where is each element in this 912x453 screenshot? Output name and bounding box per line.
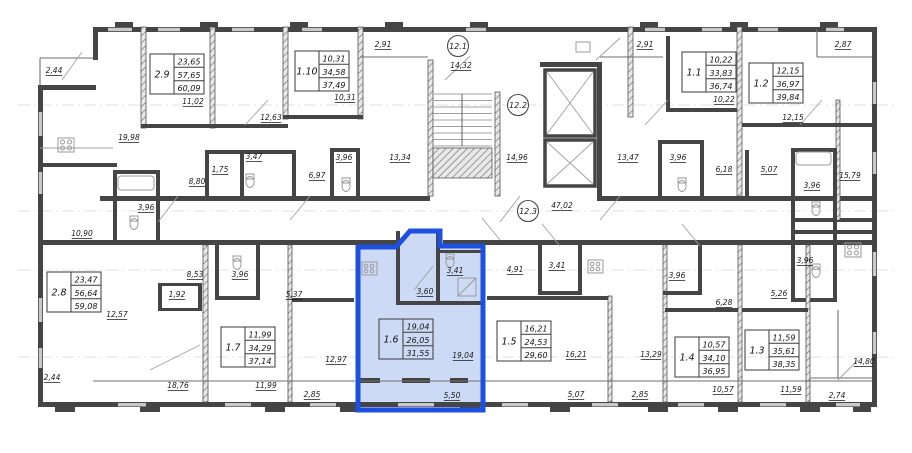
stove-icon [845, 243, 861, 257]
unit-area-1: 11,99 [249, 331, 272, 340]
unit-2.9[interactable]: 2.923,6557,6560,09 [150, 54, 204, 94]
unit-1.2[interactable]: 1.212,1536,9739,84 [749, 63, 803, 103]
unit-area-3: 36,74 [710, 82, 733, 91]
toilet-icon [233, 256, 241, 270]
floor-plan-drawing: 2,4419,9811,0212,6310,312,9114,322,9110,… [0, 0, 912, 453]
unit-area-3: 31,55 [407, 349, 430, 358]
core-marker-12.3: 12.3 [518, 201, 539, 222]
unit-number: 1.7 [225, 343, 240, 354]
unit-number: 1.5 [501, 337, 516, 348]
dimension-label: 2,87 [835, 40, 852, 49]
dimension-label: 6,28 [716, 298, 733, 307]
unit-area-3: 38,35 [773, 360, 796, 369]
dimension-label: 3,60 [417, 287, 434, 296]
stove-icon [58, 138, 74, 152]
dimension-label: 14,96 [506, 153, 528, 162]
dimension-label: 5,26 [771, 289, 788, 298]
dimension-label: 3,96 [232, 270, 249, 279]
dimension-label: 6,97 [309, 171, 326, 180]
dimension-label: 3,96 [797, 256, 814, 265]
unit-1.7[interactable]: 1.711,9934,2937,14 [221, 327, 275, 367]
unit-area-2: 33,83 [710, 69, 733, 78]
dimension-label: 5,50 [444, 391, 461, 400]
unit-area-2: 24,53 [525, 338, 548, 347]
unit-number: 2.9 [154, 70, 169, 81]
dimension-label: 16,21 [565, 350, 586, 359]
dimension-label: 2,74 [829, 391, 846, 400]
unit-area-3: 37,49 [323, 81, 346, 90]
sink-icon [576, 42, 590, 52]
core-marker-12.2: 12.2 [508, 95, 529, 116]
unit-1.3[interactable]: 1.311,5935,6138,35 [745, 330, 799, 370]
dimension-label: 3,41 [549, 261, 566, 270]
unit-area-2: 34,10 [703, 354, 726, 363]
unit-area-2: 56,64 [75, 289, 98, 298]
unit-area-3: 39,84 [777, 93, 800, 102]
dimension-label: 11,02 [182, 97, 204, 106]
unit-area-1: 11,59 [773, 334, 796, 343]
unit-area-1: 19,04 [407, 323, 430, 332]
dimension-label: 3,96 [804, 181, 821, 190]
dimension-label: 12,15 [782, 113, 804, 122]
toilet-icon [678, 178, 686, 192]
dimension-label: 10,57 [712, 385, 734, 394]
unit-area-2: 34,58 [323, 68, 346, 77]
unit-area-3: 59,08 [75, 302, 98, 311]
dimension-label: 8,80 [189, 177, 206, 186]
dimension-label: 8,53 [187, 270, 204, 279]
unit-area-3: 36,95 [703, 367, 726, 376]
dimension-label: 15,79 [839, 171, 861, 180]
dimension-label: 3,96 [669, 271, 686, 280]
marker-label: 12.3 [519, 207, 537, 216]
dimension-label: 3,96 [336, 153, 353, 162]
toilet-icon [246, 174, 254, 188]
toilet-icon [130, 216, 138, 230]
dimension-label: 14,80 [853, 357, 875, 366]
dimension-label: 13,34 [389, 153, 411, 162]
unit-number: 1.10 [296, 67, 317, 78]
unit-tables: 2.923,6557,6560,091.1010,3134,5837,491.1… [47, 51, 803, 377]
dimension-label: 12,63 [260, 113, 282, 122]
dimension-label: 2,44 [46, 66, 63, 75]
unit-area-1: 23,65 [178, 58, 201, 67]
unit-number: 1.1 [686, 68, 701, 79]
unit-number: 1.6 [383, 335, 398, 346]
dimension-label: 2,91 [637, 40, 654, 49]
unit-area-2: 57,65 [178, 71, 201, 80]
unit-1.4[interactable]: 1.410,5734,1036,95 [675, 337, 729, 377]
dimension-label: 19,04 [452, 351, 474, 360]
dimension-label: 3,41 [447, 266, 464, 275]
elevator-shafts [545, 70, 595, 186]
unit-1.5[interactable]: 1.516,2124,5329,60 [497, 321, 551, 361]
unit-number: 1.3 [749, 346, 764, 357]
dimension-label: 12,57 [106, 310, 128, 319]
staircase [433, 94, 492, 178]
floor-plan-canvas: 2,4419,9811,0212,6310,312,9114,322,9110,… [0, 0, 912, 453]
dimension-label: 2,44 [44, 373, 61, 382]
unit-area-2: 34,29 [249, 344, 272, 353]
dimension-label: 10,31 [334, 93, 355, 102]
core-marker-12.1: 12.1 [448, 36, 469, 57]
dimension-label: 10,90 [71, 229, 93, 238]
unit-1.10[interactable]: 1.1010,3134,5837,49 [295, 51, 349, 91]
dimension-label: 11,99 [255, 381, 277, 390]
dimension-label: 4,91 [507, 265, 524, 274]
unit-number: 1.4 [679, 353, 694, 364]
dimension-label: 6,18 [716, 165, 733, 174]
toilet-icon [812, 202, 820, 216]
toilet-icon [812, 264, 820, 278]
dimension-label: 3,96 [138, 203, 155, 212]
unit-number: 2.8 [51, 288, 66, 299]
bathtub-icon [796, 152, 831, 165]
dimension-label: 5,07 [568, 390, 585, 399]
dimension-label: 13,47 [617, 153, 639, 162]
dimension-label: 2,91 [375, 40, 392, 49]
unit-area-1: 12,15 [777, 67, 800, 76]
unit-1.1[interactable]: 1.110,2233,8336,74 [682, 52, 736, 92]
dimension-label: 5,37 [286, 290, 303, 299]
unit-area-1: 23,47 [75, 276, 99, 285]
unit-area-1: 10,31 [323, 55, 346, 64]
dimension-label: 47,02 [551, 201, 573, 210]
marker-label: 12.1 [449, 42, 467, 51]
dimension-label: 3,47 [246, 152, 263, 161]
dimension-label: 19,98 [118, 133, 140, 142]
unit-area-3: 60,09 [178, 84, 201, 93]
dimension-label: 18,76 [167, 381, 189, 390]
unit-area-2: 26,05 [407, 336, 430, 345]
selected-unit-area[interactable] [358, 231, 483, 410]
unit-area-3: 29,60 [525, 351, 548, 360]
unit-area-2: 36,97 [777, 80, 801, 89]
stove-icon [588, 260, 603, 273]
unit-area-2: 35,61 [773, 347, 796, 356]
dimension-label: 13,29 [640, 350, 662, 359]
dimension-label: 5,07 [761, 165, 778, 174]
toilet-icon [342, 178, 350, 192]
dimension-label: 12,97 [325, 355, 347, 364]
marker-label: 12.2 [509, 101, 527, 110]
unit-area-3: 37,14 [249, 357, 272, 366]
unit-2.8[interactable]: 2.823,4756,6459,08 [47, 272, 101, 312]
dimension-label: 2,85 [632, 390, 649, 399]
unit-area-1: 16,21 [525, 325, 548, 334]
dimension-label: 11,59 [780, 385, 802, 394]
unit-number: 1.2 [753, 79, 768, 90]
dimension-label: 1,92 [169, 290, 186, 299]
dimension-label: 2,85 [304, 390, 321, 399]
dimension-label: 3,96 [670, 153, 687, 162]
dimension-label: 10,22 [713, 95, 735, 104]
bathtub-icon [118, 176, 154, 190]
dimension-label: 14,32 [450, 61, 472, 70]
unit-area-1: 10,22 [710, 56, 733, 65]
dimension-label: 1,75 [212, 165, 229, 174]
unit-area-1: 10,57 [703, 341, 727, 350]
